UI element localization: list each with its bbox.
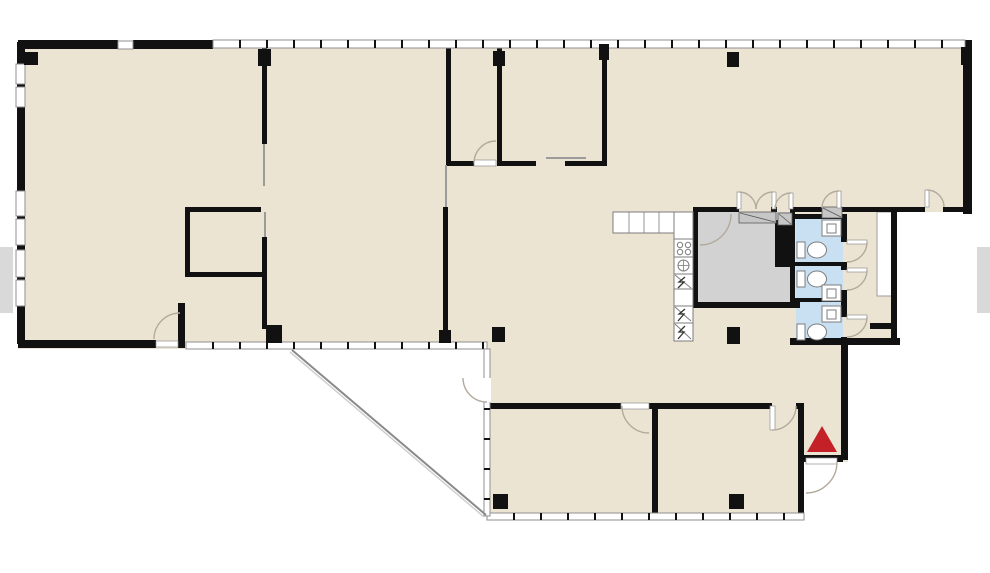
window-band-south-west	[186, 342, 487, 349]
door-leaf	[474, 160, 496, 166]
column	[24, 52, 38, 65]
interior-wall	[652, 406, 658, 516]
exterior-wall	[963, 40, 972, 214]
interior-wall	[943, 207, 965, 212]
exit-door-arc	[806, 462, 837, 493]
diagonal-glass-wall	[292, 350, 486, 515]
exterior-wall	[841, 345, 848, 460]
interior-wall	[649, 403, 772, 409]
door-leaf	[737, 192, 741, 209]
column	[492, 327, 505, 342]
interior-wall	[185, 207, 261, 212]
door-leaf	[847, 315, 867, 319]
door-leaf	[837, 191, 841, 208]
window-glass	[484, 349, 490, 516]
window-pane	[16, 191, 25, 216]
interior-wall	[841, 207, 925, 212]
hand-sink-basin	[827, 310, 836, 319]
stall-divider	[795, 262, 841, 266]
door-leaf	[847, 268, 867, 272]
interior-wall	[185, 272, 265, 277]
left-gutter-band	[0, 247, 13, 313]
window-band-north	[213, 40, 965, 48]
exterior-wall	[18, 40, 118, 49]
window-pane	[118, 41, 133, 49]
interior-wall	[602, 42, 607, 166]
door-leaf	[789, 193, 793, 209]
interior-wall	[791, 207, 825, 212]
interior-wall	[446, 42, 451, 166]
interior-wall	[695, 207, 739, 212]
column	[727, 327, 740, 344]
interior-wall	[841, 262, 847, 270]
window-band-south-east	[487, 513, 804, 520]
toilet-icon	[797, 271, 805, 287]
hand-sink-basin	[827, 224, 836, 233]
wall-opening-line	[263, 144, 265, 186]
interior-wall	[693, 302, 800, 308]
floor-west-wing	[18, 42, 487, 349]
window-pane	[16, 87, 25, 107]
interior-wall	[693, 207, 698, 308]
toilet-icon	[797, 324, 805, 340]
wall-opening-line	[264, 212, 266, 237]
interior-wall	[891, 212, 897, 343]
sliding-door-line	[546, 157, 586, 159]
window-band-east	[484, 349, 490, 516]
window-glass	[186, 342, 487, 349]
window-pane	[16, 250, 25, 277]
door-leaf	[770, 406, 775, 430]
floor-plan-svg	[0, 0, 990, 573]
door-leaf	[156, 341, 178, 347]
column	[266, 325, 282, 343]
wall-opening-line	[445, 165, 447, 207]
interior-wall	[487, 403, 622, 409]
toilet-icon	[797, 242, 805, 258]
column	[961, 47, 972, 65]
window-pane	[16, 64, 25, 84]
interior-wall	[178, 303, 185, 348]
window-pane	[16, 280, 25, 306]
interior-wall	[565, 161, 607, 166]
window-pane	[16, 219, 25, 245]
exterior-wall	[18, 340, 156, 348]
kitchen-cabinet	[674, 289, 693, 306]
floor-northeast-hall	[487, 42, 970, 212]
column	[729, 494, 744, 509]
door-leaf	[806, 458, 837, 464]
shaft	[877, 212, 892, 296]
interior-wall	[446, 161, 476, 166]
column	[727, 52, 739, 67]
door-leaf	[621, 403, 649, 409]
column	[493, 494, 508, 509]
column	[599, 44, 609, 60]
column	[493, 51, 505, 66]
kitchen-counter	[674, 212, 693, 239]
right-gutter-band	[977, 247, 990, 313]
hand-sink-basin	[827, 289, 836, 298]
toilet-bowl	[808, 242, 827, 258]
diagonal-glass-wall-inner	[290, 352, 484, 517]
interior-wall	[841, 290, 847, 317]
window-glass	[213, 40, 965, 48]
interior-wall	[497, 161, 536, 166]
column	[439, 330, 451, 343]
wall-block	[775, 220, 795, 267]
interior-wall	[443, 207, 448, 347]
door-leaf	[847, 240, 867, 244]
door-gap	[483, 378, 491, 402]
floor-plan-screenshot	[0, 0, 990, 573]
exterior-wall	[133, 40, 213, 49]
door-leaf	[925, 190, 929, 207]
toilet-bowl	[808, 324, 827, 340]
column	[258, 49, 271, 66]
interior-wall	[185, 207, 190, 277]
interior-wall	[262, 237, 267, 329]
interior-wall	[790, 338, 900, 345]
